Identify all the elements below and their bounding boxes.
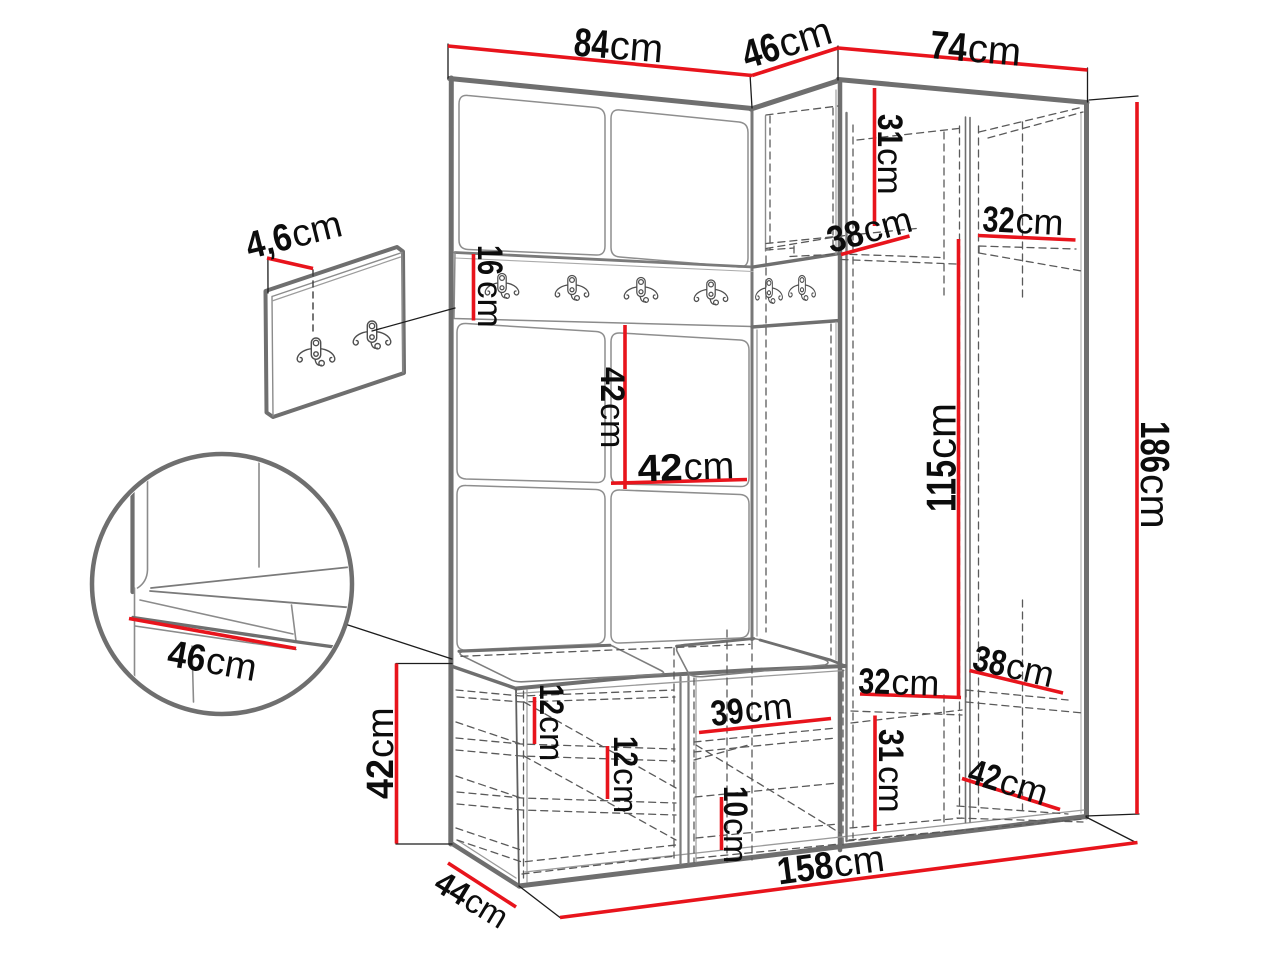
svg-text:42cm: 42cm [593, 367, 631, 448]
svg-text:42cm: 42cm [637, 445, 735, 490]
svg-text:186cm: 186cm [1132, 421, 1178, 529]
svg-text:16cm: 16cm [470, 245, 509, 328]
svg-text:84cm: 84cm [572, 21, 665, 72]
svg-text:31cm: 31cm [870, 114, 909, 195]
svg-text:32cm: 32cm [858, 660, 940, 704]
svg-text:42cm: 42cm [360, 707, 402, 799]
svg-text:31cm: 31cm [871, 729, 910, 813]
svg-text:39cm: 39cm [709, 685, 795, 734]
svg-text:32cm: 32cm [982, 198, 1065, 243]
svg-text:115cm: 115cm [918, 403, 965, 512]
svg-text:12cm: 12cm [532, 684, 570, 761]
svg-text:12cm: 12cm [606, 736, 644, 813]
svg-text:74cm: 74cm [928, 23, 1023, 75]
svg-text:10cm: 10cm [716, 786, 754, 863]
